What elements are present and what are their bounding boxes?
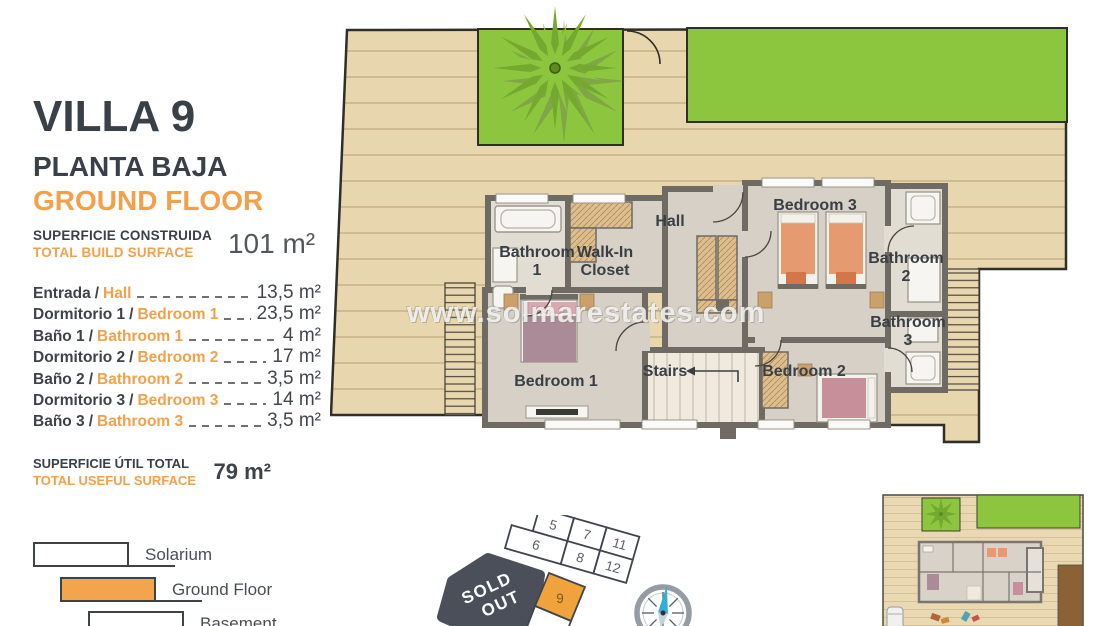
room-row: Dormitorio 2/Bedroom 2 17 m²: [33, 346, 321, 367]
room-name-en: Hall: [103, 285, 131, 303]
room-area-value: 4 m²: [283, 325, 321, 347]
build-surface-value: 101 m²: [228, 228, 315, 260]
room-name-es: Baño 2: [33, 371, 85, 389]
compass-icon: [637, 585, 689, 626]
room-name-en: Bathroom 3: [97, 413, 183, 431]
bed-bedroom2: [817, 374, 877, 422]
mini-dirt-patch: [1058, 565, 1083, 626]
useful-surface-value: 79 m²: [214, 459, 271, 485]
floor-plan-drawing: [330, 0, 1070, 462]
mini-car: [887, 607, 903, 626]
dotted-leader: [137, 296, 250, 298]
room-name-en: Bathroom 2: [97, 371, 183, 389]
label-bedroom1: Bedroom 1: [498, 373, 614, 391]
plot-number-9: 9: [556, 591, 564, 606]
label-bathroom2: Bathroom 2: [867, 250, 945, 286]
dotted-leader: [224, 403, 266, 405]
build-surface-label-en: TOTAL BUILD SURFACE: [33, 245, 212, 260]
room-name-es: Dormitorio 2: [33, 349, 125, 367]
site-plan: SOLD OUT 5 7 11 6 8 12 9 10: [430, 515, 720, 626]
room-name-es: Entrada: [33, 285, 91, 303]
room-row: Baño 3/Bathroom 3 3,5 m²: [33, 410, 321, 431]
build-surface-label-es: SUPERFICIE CONSTRUIDA: [33, 228, 212, 243]
mini-overview-map: [875, 490, 1087, 626]
room-name-es: Baño 1: [33, 328, 85, 346]
watermark: www.solmarestates.com: [407, 297, 765, 330]
legend-label-basement: Basement: [200, 614, 277, 626]
room-name-en: Bathroom 1: [97, 328, 183, 346]
room-row: Dormitorio 3/Bedroom 3 14 m²: [33, 389, 321, 410]
label-hall: Hall: [645, 213, 695, 231]
useful-surface-label-es: SUPERFICIE ÚTIL TOTAL: [33, 456, 196, 471]
chimney: [720, 422, 736, 439]
room-name-es: Dormitorio 3: [33, 392, 125, 410]
mini-house: [919, 542, 1043, 602]
mini-lawn-right: [977, 495, 1080, 528]
dotted-leader: [189, 382, 261, 384]
dotted-leader: [224, 361, 266, 363]
label-walk-in-closet: Walk-In Closet: [555, 244, 655, 280]
build-surface-row: SUPERFICIE CONSTRUIDA TOTAL BUILD SURFAC…: [33, 228, 321, 260]
useful-surface-row: SUPERFICIE ÚTIL TOTAL TOTAL USEFUL SURFA…: [33, 456, 321, 488]
dotted-leader: [189, 425, 261, 427]
room-area-value: 17 m²: [272, 346, 321, 368]
room-area-value: 23,5 m²: [257, 303, 321, 325]
room-area-value: 3,5 m²: [267, 410, 321, 432]
room-area-list: Entrada/Hall 13,5 m² Dormitorio 1/Bedroo…: [33, 282, 321, 432]
legend-swatch-ground-floor: [60, 577, 156, 602]
sold-out-wedge: SOLD OUT: [442, 558, 540, 626]
page-title: VILLA 9: [33, 95, 321, 139]
room-name-es: Dormitorio 1: [33, 306, 125, 324]
room-name-en: Bedroom 2: [137, 349, 218, 367]
room-row: Baño 1/Bathroom 1 4 m²: [33, 325, 321, 346]
room-area-value: 3,5 m²: [267, 368, 321, 390]
floor-name-es: PLANTA BAJA: [33, 153, 321, 181]
room-name-en: Bedroom 3: [137, 392, 218, 410]
brochure-page: VILLA 9 PLANTA BAJA GROUND FLOOR SUPERFI…: [0, 0, 1110, 626]
lawn-right: [687, 28, 1067, 122]
useful-surface-label-en: TOTAL USEFUL SURFACE: [33, 473, 196, 488]
room-row: Baño 2/Bathroom 2 3,5 m²: [33, 368, 321, 389]
room-stairs: [645, 350, 762, 425]
floor-legend: Solarium Ground Floor Basement: [33, 542, 333, 626]
room-name-es: Baño 3: [33, 413, 85, 431]
label-bedroom2: Bedroom 2: [748, 363, 860, 381]
label-stairs: Stairs: [634, 363, 696, 381]
dotted-leader: [189, 339, 277, 341]
label-bedroom3: Bedroom 3: [757, 197, 873, 215]
info-panel: VILLA 9 PLANTA BAJA GROUND FLOOR SUPERFI…: [33, 95, 321, 488]
room-area-value: 13,5 m²: [257, 282, 321, 304]
legend-swatch-solarium: [33, 542, 129, 567]
exterior-steps-right: [945, 269, 979, 390]
floor-name-en: GROUND FLOOR: [33, 187, 321, 215]
label-bathroom3: Bathroom 3: [869, 314, 947, 350]
room-row: Dormitorio 1/Bedroom 1 23,5 m²: [33, 303, 321, 324]
dotted-leader: [224, 318, 250, 320]
room-row: Entrada/Hall 13,5 m²: [33, 282, 321, 303]
room-name-en: Bedroom 1: [137, 306, 218, 324]
legend-swatch-basement: [88, 611, 184, 626]
legend-label-solarium: Solarium: [145, 545, 212, 565]
room-area-value: 14 m²: [272, 389, 321, 411]
legend-label-ground-floor: Ground Floor: [172, 580, 272, 600]
